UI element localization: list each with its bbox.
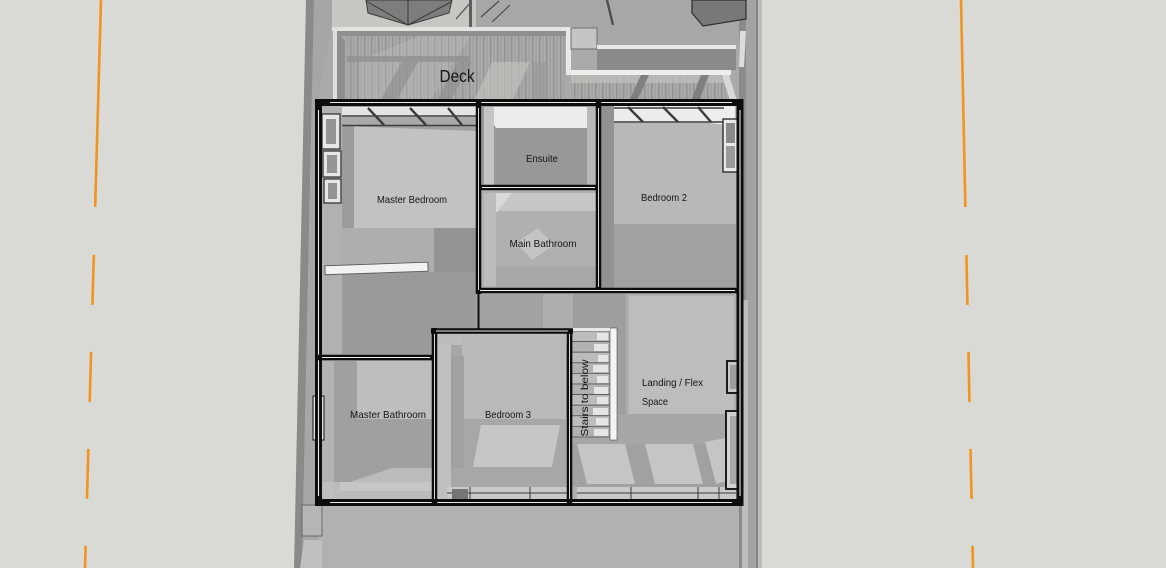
svg-text:Main Bathroom: Main Bathroom <box>510 238 577 250</box>
svg-text:Ensuite: Ensuite <box>526 153 558 165</box>
svg-text:Master Bedroom: Master Bedroom <box>377 194 447 206</box>
svg-text:Landing / Flex: Landing / Flex <box>642 377 704 389</box>
svg-text:Deck: Deck <box>440 66 475 86</box>
svg-text:Bedroom 3: Bedroom 3 <box>485 409 531 421</box>
svg-text:Bedroom 2: Bedroom 2 <box>641 192 687 204</box>
svg-text:Master Bathroom: Master Bathroom <box>350 409 426 421</box>
svg-text:Stairs to below: Stairs to below <box>579 359 591 436</box>
svg-text:Space: Space <box>642 396 668 408</box>
